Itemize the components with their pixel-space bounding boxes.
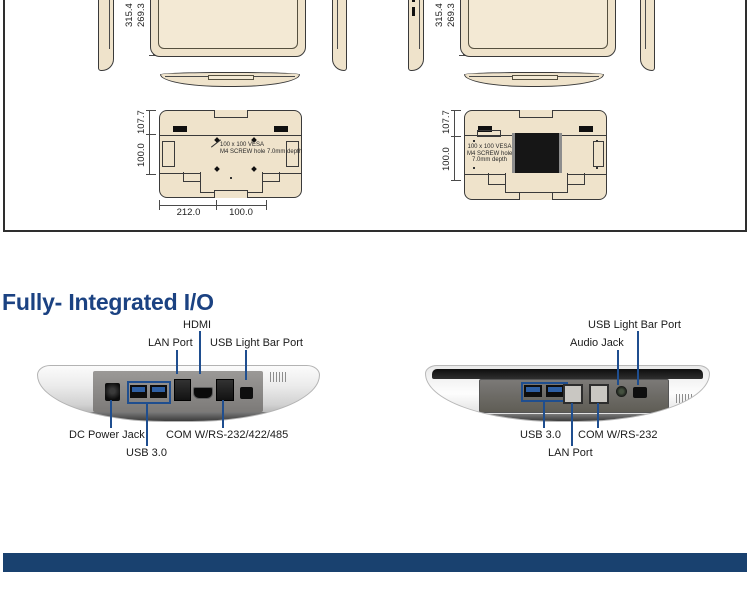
side-view-left [98,0,114,71]
hdmi-port [193,387,213,399]
dimension-line [149,110,150,174]
dimension-line [454,110,455,180]
side-port-mark [412,0,415,2]
side-view-right [640,0,655,71]
device-screen-edge [432,369,703,379]
rear-vent [579,126,593,132]
port-label-lan: LAN Port [148,337,193,349]
side-view-left [408,0,424,71]
vesa-note: 100 x 100 VESA M4 SCREW hole 7.0mm depth [220,142,302,155]
callout-line-usb [146,403,148,446]
lan-port [563,384,583,404]
rear-bottom-notch [519,192,553,200]
callout-line-audio [617,350,619,385]
port-label-usb: USB 3.0 [126,447,167,459]
io-device-left [37,365,320,422]
side-view-line [645,0,646,49]
footer-bar: Online Download www.advantech.com/produc… [3,553,747,572]
side-view-line [337,0,338,49]
side-view-right [332,0,347,71]
bottom-view-detail [208,75,254,80]
dc-power-jack-port [105,383,120,401]
front-view-screen [468,0,608,49]
callout-line-usb [543,400,545,428]
dimension-tick [146,174,156,175]
rear-cutout [162,141,175,167]
port-label-com: COM W/RS-232/422/485 [166,429,288,441]
dimension-tick [146,134,156,135]
front-view [460,0,616,57]
com-port [216,379,234,401]
bottom-view-detail [512,75,558,80]
side-view-line [109,0,110,49]
side-view-line [419,0,420,49]
screw-dot [473,167,475,169]
dim-display-height: 269.3 [446,0,457,44]
rear-cutout [593,141,604,167]
port-label-com: COM W/RS-232 [578,429,657,441]
callout-line-hdmi [199,331,201,374]
dimension-tick [146,110,156,111]
dimension-tick [451,110,461,111]
rear-bottom-notch [214,190,248,198]
port-label-usb: USB 3.0 [520,429,561,441]
callout-line-dc [110,400,112,428]
bottom-view [160,72,300,87]
front-view [150,0,306,57]
usb-port [150,385,167,398]
vesa-note: 100 x 100 VESA M4 SCREW hole 7.0mm depth [467,144,512,164]
screw-dot [596,167,598,169]
rear-bracket [477,130,501,137]
callout-line-com [597,403,599,428]
rear-view: 100 x 100 VESA M4 SCREW hole 7.0mm depth [159,110,302,198]
dimension-line [159,205,267,206]
speaker-grille [676,394,692,403]
dimension-drawings-panel: 315.4 269.3 [3,0,747,232]
usb-port [546,385,564,397]
port-label-light-bar: USB Light Bar Port [210,337,303,349]
callout-line-light-bar [245,350,247,380]
device-shadow [49,412,308,421]
dim-display-height: 269.3 [136,0,147,44]
rear-dim-vesa-vertical: 100.0 [136,135,147,175]
port-label-light-bar: USB Light Bar Port [588,319,681,331]
rear-dim-vesa-horizontal: 100.0 [218,207,264,218]
rear-dim-height: 107.7 [136,108,147,136]
rear-view: 100 x 100 VESA M4 SCREW hole 7.0mm depth [464,110,607,200]
audio-jack-port [616,386,627,397]
screw-dot [596,140,598,142]
rear-stand-outline [505,173,568,193]
dimension-tick [451,180,461,181]
side-port-mark [412,7,415,16]
io-device-right [425,365,710,422]
front-view-screen [158,0,298,49]
callout-line-lan [176,350,178,374]
callout-line-com [222,400,224,428]
vesa-note-line: 100 x 100 VESA [467,144,512,151]
light-bar-port [633,387,647,398]
rear-vent [173,126,187,132]
dimension-tick [216,200,217,210]
com-port [589,384,609,404]
speaker-grille [270,372,287,382]
datasheet-page: 315.4 269.3 [0,0,750,591]
screw-dot [473,140,475,142]
callout-line-lan [571,403,573,446]
rear-dim-width: 212.0 [161,207,216,218]
dimension-tick [159,200,160,210]
callout-line-light-bar [637,331,639,385]
device-shadow [437,414,697,421]
dim-total-height: 315.4 [124,0,135,44]
vesa-note-line: 7.0mm depth [467,157,512,164]
port-label-audio: Audio Jack [570,337,624,349]
device-body [425,365,710,422]
device-body [37,365,320,422]
rear-top-notch [214,110,248,118]
light-bar-port [240,387,253,399]
dim-total-height: 315.4 [434,0,445,44]
port-label-dc: DC Power Jack [69,429,145,441]
rear-vent [274,126,288,132]
port-label-lan: LAN Port [548,447,593,459]
rear-dim-height: 107.7 [441,108,452,136]
usb-port [524,385,542,397]
port-label-hdmi: HDMI [183,319,211,331]
dimension-tick [266,200,267,210]
bottom-view [464,72,604,87]
vesa-note-line: M4 SCREW hole 7.0mm depth [220,149,302,156]
section-title: Fully- Integrated I/O [2,289,214,316]
screw-dot [230,177,232,179]
lan-port [174,379,191,401]
usb-port [130,385,147,398]
dimension-tick [451,136,461,137]
rear-dim-vesa-vertical: 100.0 [441,137,452,181]
rear-top-notch [519,110,553,118]
